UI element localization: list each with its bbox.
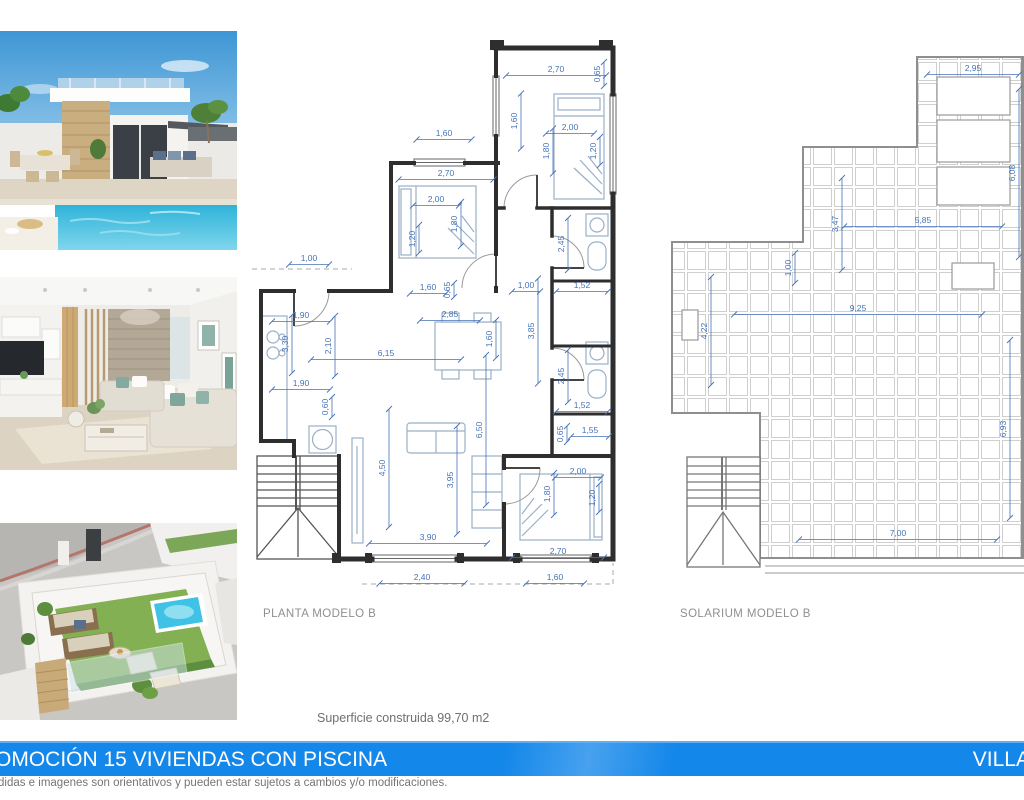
svg-text:2,45: 2,45 — [556, 367, 566, 384]
svg-text:2,95: 2,95 — [965, 63, 982, 73]
svg-text:3,47: 3,47 — [830, 215, 840, 232]
svg-text:1,20: 1,20 — [407, 230, 417, 247]
rooftop-solarium-photo — [0, 523, 237, 720]
svg-text:1,55: 1,55 — [582, 425, 599, 435]
svg-text:2,40: 2,40 — [414, 572, 431, 582]
solarium-plan-label: SOLARIUM MODELO B — [680, 608, 811, 620]
rooftop-illustration — [0, 523, 237, 720]
svg-text:1,60: 1,60 — [547, 572, 564, 582]
banner-promo-text: OMOCIÓN 15 VIVIENDAS CON PISCINA — [0, 748, 387, 772]
svg-text:1,60: 1,60 — [484, 330, 494, 347]
svg-text:9,25: 9,25 — [850, 303, 867, 313]
villa-pool-illustration — [0, 31, 237, 250]
svg-text:1,00: 1,00 — [301, 253, 318, 263]
svg-text:1,20: 1,20 — [588, 142, 598, 159]
svg-text:4,50: 4,50 — [377, 459, 387, 476]
svg-text:0,60: 0,60 — [320, 398, 330, 415]
villa-pool-photo — [0, 31, 237, 250]
planta-plan-label: PLANTA MODELO B — [263, 608, 376, 620]
svg-text:3,95: 3,95 — [445, 471, 455, 488]
svg-text:1,60: 1,60 — [436, 128, 453, 138]
brochure-page: 2,700,651,602,001,801,201,602,702,001,80… — [0, 0, 1024, 800]
svg-text:4,22: 4,22 — [699, 322, 709, 339]
svg-text:3,90: 3,90 — [420, 532, 437, 542]
sofa-center — [100, 376, 164, 411]
banner-villa-text: VILLA — [973, 748, 1024, 772]
living-room-photo — [0, 277, 237, 470]
tv — [0, 341, 44, 375]
svg-text:3,30: 3,30 — [280, 335, 290, 352]
disclaimer-text: didas e imagenes son orientativos y pued… — [0, 777, 447, 789]
promo-banner: OMOCIÓN 15 VIVIENDAS CON PISCINA VILLA — [0, 741, 1024, 776]
coffee-table — [85, 425, 147, 451]
solarium-plan-modelo-b: 2,956,083,475,851,009,254,226,937,00 — [665, 40, 1024, 598]
svg-text:1,80: 1,80 — [449, 215, 459, 232]
svg-text:2,70: 2,70 — [550, 546, 567, 556]
svg-text:1,00: 1,00 — [518, 280, 535, 290]
svg-text:6,08: 6,08 — [1007, 164, 1017, 181]
svg-text:2,85: 2,85 — [442, 309, 459, 319]
svg-text:1,00: 1,00 — [783, 259, 793, 276]
floor-plan-planta-modelo-b: 2,700,651,602,001,801,201,602,702,001,80… — [252, 36, 664, 596]
svg-text:0,65: 0,65 — [592, 65, 602, 82]
svg-text:1,90: 1,90 — [293, 378, 310, 388]
svg-text:2,00: 2,00 — [428, 194, 445, 204]
solarium-stairs — [687, 457, 760, 567]
svg-text:1,80: 1,80 — [541, 142, 551, 159]
svg-text:6,15: 6,15 — [378, 348, 395, 358]
svg-text:7,00: 7,00 — [890, 528, 907, 538]
svg-text:6,93: 6,93 — [998, 420, 1008, 437]
terrace-railing — [765, 566, 1024, 573]
svg-text:2,10: 2,10 — [323, 337, 333, 354]
svg-text:1,52: 1,52 — [574, 280, 591, 290]
svg-text:0,65: 0,65 — [555, 425, 565, 442]
foreground-table — [0, 217, 58, 250]
svg-text:2,70: 2,70 — [548, 64, 565, 74]
svg-text:3,85: 3,85 — [526, 322, 536, 339]
svg-text:0,65: 0,65 — [442, 281, 452, 298]
svg-text:2,45: 2,45 — [556, 235, 566, 252]
svg-text:1,60: 1,60 — [509, 112, 519, 129]
stairs — [257, 456, 339, 559]
svg-text:2,00: 2,00 — [562, 122, 579, 132]
living-room-illustration — [0, 277, 237, 470]
svg-text:1,60: 1,60 — [420, 282, 437, 292]
svg-text:1,80: 1,80 — [542, 485, 552, 502]
stone-pillar — [35, 658, 69, 714]
svg-text:6,50: 6,50 — [474, 421, 484, 438]
svg-text:2,70: 2,70 — [438, 168, 455, 178]
svg-text:1,52: 1,52 — [574, 400, 591, 410]
svg-text:5,85: 5,85 — [915, 215, 932, 225]
built-surface-note: Superficie construida 99,70 m2 — [317, 711, 489, 725]
svg-text:1,90: 1,90 — [293, 310, 310, 320]
svg-text:1,20: 1,20 — [587, 489, 597, 506]
svg-text:2,00: 2,00 — [570, 466, 587, 476]
